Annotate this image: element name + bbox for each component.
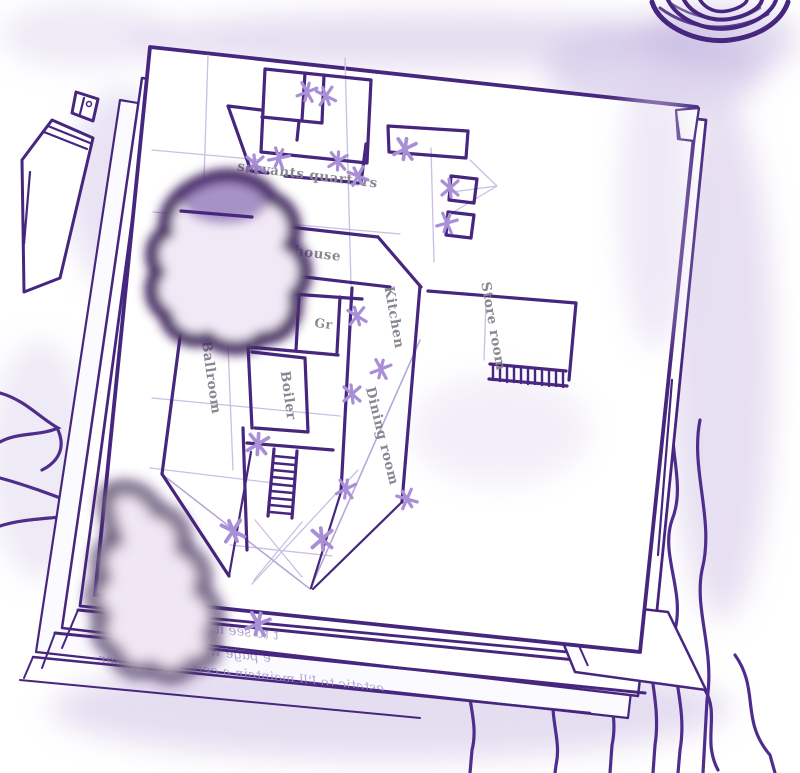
sketch-scene: t to see it. Still the e page was strick… [0, 0, 800, 773]
large-ink-blot [152, 176, 305, 348]
sheet-inner-shade-2 [410, 375, 590, 485]
sheet-inner-shade [620, 50, 690, 350]
illustration-stage: t to see it. Still the e page was strick… [0, 0, 800, 773]
label-gr-right: Gr [314, 315, 334, 332]
